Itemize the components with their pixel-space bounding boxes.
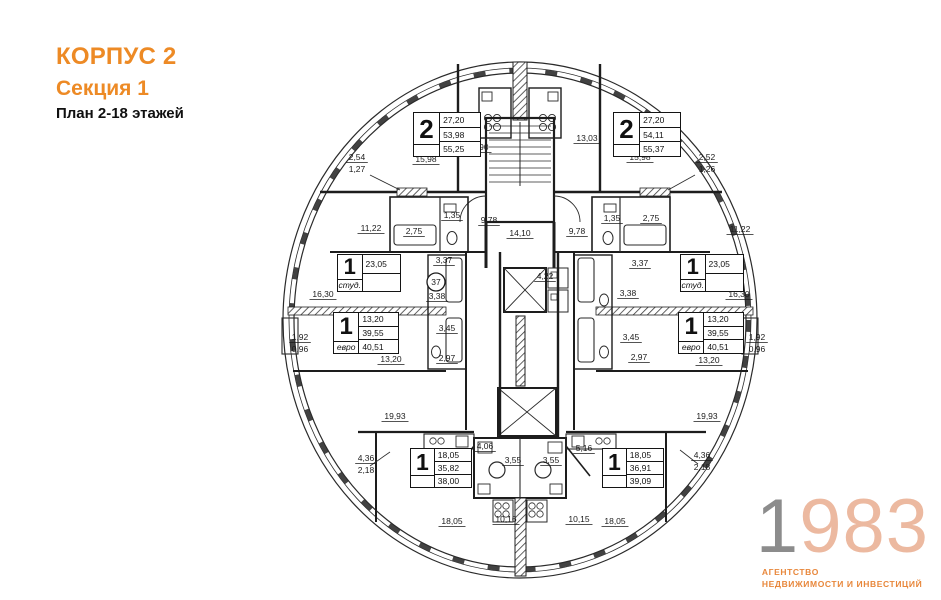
dimension-value: 3,55 <box>543 455 560 465</box>
dimension-label: 4,22 <box>534 271 556 282</box>
dimension-label: 3,37 <box>433 255 455 266</box>
bathroom-zone-right <box>592 197 670 252</box>
apartment-areas: 27,2053,9855,25 <box>440 113 480 156</box>
apartment-type-tag <box>411 475 434 487</box>
dimension-value: 3,38 <box>620 288 637 298</box>
apartment-rooms-cell: 1студ. <box>338 255 363 291</box>
apartment-area-value: 18,05 <box>435 449 471 462</box>
dimension-label: 4,06 <box>474 441 496 452</box>
dimension-value: 18,05 <box>604 516 626 526</box>
dimension-value: 3,38 <box>429 291 446 301</box>
apt-1-bottom-left: 118,0535,8238,00 <box>410 448 472 488</box>
apt-1-bottom-right: 118,0536,9139,09 <box>602 448 664 488</box>
stairwell <box>486 118 554 222</box>
dimension-value: 3,45 <box>623 332 640 342</box>
apartment-type-tag <box>603 475 626 487</box>
toilet <box>600 294 609 306</box>
apt-1-euro-left: 1евро13,2039,5540,51 <box>333 312 399 354</box>
vent-shaft-mid <box>516 316 525 386</box>
dimension-label: 18,05 <box>439 516 466 527</box>
dimension-value: 3,37 <box>632 258 649 268</box>
dimension-label: 2,75 <box>640 213 662 224</box>
sink <box>604 204 616 212</box>
apartment-rooms-cell: 1 <box>603 449 627 487</box>
elevator-shaft-lower <box>498 388 556 436</box>
dimension-label: 3,38 <box>426 291 448 302</box>
vent-shaft-bottom <box>515 498 526 576</box>
apartment-room-count: 2 <box>414 113 439 144</box>
dimension-value: 1,35 <box>444 210 461 220</box>
dimension-label: 1,35 <box>601 213 623 224</box>
apartment-area-value: 40,51 <box>704 340 743 353</box>
apartment-rooms-cell: 1евро <box>679 313 704 353</box>
dimension-label: 10,15 <box>566 514 593 525</box>
toilet <box>603 232 613 245</box>
kitchen-block-top-right <box>529 88 561 138</box>
apt-1-studio-left: 1студ.23,05 <box>337 254 401 292</box>
apartment-area-value: 23,05 <box>363 255 400 274</box>
dimension-label: 18,05 <box>602 516 629 527</box>
dimension-value: 4,36 <box>358 453 375 463</box>
apartment-type-tag <box>414 144 439 156</box>
dimension-value: 1,92 <box>749 332 766 342</box>
apartment-area-value: 36,91 <box>627 462 663 475</box>
logo-year-1983: 1983 <box>756 491 929 563</box>
dimension-value: 19,93 <box>384 411 406 421</box>
apartment-area-value: 40,51 <box>359 340 398 353</box>
dimension-value: 1,92 <box>292 332 309 342</box>
dimension-value: 1,35 <box>604 213 621 223</box>
apartment-area-value: 27,20 <box>440 113 480 128</box>
vent-shaft-top <box>513 62 527 120</box>
apartment-room-count: 1 <box>334 313 358 341</box>
dimension-label: 13,20 <box>378 354 405 365</box>
dimension-value: 2,52 <box>699 152 716 162</box>
apartment-areas: 18,0536,9139,09 <box>627 449 663 487</box>
apartment-areas: 13,2039,5540,51 <box>359 313 398 353</box>
dimension-label: 19,93 <box>694 411 721 422</box>
dimension-label: 19,93 <box>382 411 409 422</box>
dimension-label: 13,20 <box>696 355 723 366</box>
apartment-room-count: 2 <box>614 113 639 144</box>
dimension-value: 13,03 <box>576 133 598 143</box>
door-swing-right <box>554 196 580 222</box>
apartment-area-value: 38,00 <box>435 475 471 487</box>
dimension-value-secondary: 1,27 <box>349 164 366 174</box>
dimension-label: 9,78 <box>566 226 588 237</box>
dimension-value-secondary: 0,96 <box>292 344 309 354</box>
dimension-value: 11,22 <box>361 223 382 233</box>
apartment-area-value: 54,11 <box>640 128 680 143</box>
dimension-label: 13,03 <box>574 133 601 144</box>
dimension-label: 3,45 <box>436 323 458 334</box>
dimension-label: 3,45 <box>620 332 642 343</box>
agency-name-line2: НЕДВИЖИМОСТИ И ИНВЕСТИЦИЙ <box>762 579 929 590</box>
callout-37: 37 <box>427 273 445 291</box>
dimension-value-secondary: 0,96 <box>749 344 766 354</box>
callout-value: 37 <box>431 277 441 287</box>
apartment-rooms-cell: 1 <box>411 449 435 487</box>
bathtub <box>578 258 594 302</box>
agency-name: АГЕНТСТВО НЕДВИЖИМОСТИ И ИНВЕСТИЦИЙ <box>762 567 929 590</box>
dimension-value: 9,78 <box>481 215 498 225</box>
dimension-value: 14,10 <box>509 228 531 238</box>
dimension-label: 3,37 <box>629 258 651 269</box>
toilet <box>447 232 457 245</box>
kitchen-counter-bottom-left <box>424 434 474 449</box>
apartment-area-value: 13,20 <box>704 313 743 327</box>
apartment-area-value: 18,05 <box>627 449 663 462</box>
dimension-value: 13,20 <box>380 354 402 364</box>
apt-1-studio-right: 1студ.23,05 <box>680 254 744 292</box>
dimension-value: 16,30 <box>312 289 334 299</box>
apartment-type-tag: евро <box>679 341 703 353</box>
bathtub <box>578 318 594 362</box>
apartment-area-value: 39,55 <box>359 327 398 341</box>
dimension-value-secondary: 2,18 <box>694 462 711 472</box>
dimension-label: 9,78 <box>478 215 500 226</box>
logo-digits-salmon: 983 <box>799 484 929 569</box>
dimension-label: 3,55 <box>540 455 562 466</box>
dimension-value: 5,16 <box>576 443 593 453</box>
apartment-areas: 23,05 <box>363 255 400 291</box>
dimension-label: 1,35 <box>441 210 463 221</box>
kitchen-block-top-left <box>479 88 511 138</box>
apt-2-top-right: 227,2054,1155,37 <box>613 112 681 157</box>
dimension-label: 4,362,18 <box>355 453 377 475</box>
dimension-label: 2,541,27 <box>346 152 368 174</box>
dimension-label: 3,55 <box>502 455 524 466</box>
apartment-room-count: 1 <box>603 449 626 475</box>
apartment-area-value: 55,25 <box>440 142 480 156</box>
bathroom-zone-left <box>390 197 468 252</box>
dimension-label: 3,38 <box>617 288 639 299</box>
dimension-label: 11,22 <box>727 224 754 235</box>
apartment-type-tag: студ. <box>681 279 705 291</box>
apartment-area-value: 35,82 <box>435 462 471 475</box>
dimension-label: 16,30 <box>310 289 337 300</box>
apartment-area-spacer <box>706 274 743 292</box>
apartment-room-count: 1 <box>679 313 703 341</box>
dimension-value: 9,78 <box>569 226 586 236</box>
apartment-rooms-cell: 1евро <box>334 313 359 353</box>
dimension-value: 3,37 <box>436 255 453 265</box>
dimension-label: 2,97 <box>628 352 650 363</box>
apartment-room-count: 1 <box>681 255 705 279</box>
apartment-type-tag: студ. <box>338 279 362 291</box>
dimension-value: 3,45 <box>439 323 456 333</box>
apartment-areas: 27,2054,1155,37 <box>640 113 680 156</box>
apartment-areas: 18,0535,8238,00 <box>435 449 471 487</box>
apartment-areas: 13,2039,5540,51 <box>704 313 743 353</box>
apartment-area-value: 55,37 <box>640 142 680 156</box>
dimension-value-secondary: 1,26 <box>699 164 716 174</box>
apartment-area-value: 39,09 <box>627 475 663 487</box>
dimension-value: 18,05 <box>441 516 463 526</box>
apartment-areas: 23,05 <box>706 255 743 291</box>
dimension-value: 3,55 <box>505 455 522 465</box>
dimension-value: 2,75 <box>643 213 660 223</box>
apartment-area-value: 27,20 <box>640 113 680 128</box>
dimension-value: 4,06 <box>477 441 494 451</box>
dimension-label: 5,16 <box>573 443 595 454</box>
toilet <box>600 346 609 358</box>
dimension-value: 2,97 <box>631 352 648 362</box>
bathtub <box>624 225 666 245</box>
dimension-value: 19,93 <box>696 411 718 421</box>
dimension-label: 14,10 <box>507 228 534 239</box>
apartment-area-value: 13,20 <box>359 313 398 327</box>
apt-1-euro-right: 1евро13,2039,5540,51 <box>678 312 744 354</box>
dimension-label: 2,97 <box>436 353 458 364</box>
dimension-value: 4,36 <box>694 450 711 460</box>
apartment-area-value: 53,98 <box>440 128 480 143</box>
dimension-value: 2,97 <box>439 353 456 363</box>
apartment-room-count: 1 <box>411 449 434 475</box>
apartment-type-tag: евро <box>334 341 358 353</box>
dimension-label: 2,75 <box>403 226 425 237</box>
dimension-label: 10,16 <box>493 514 520 525</box>
dimension-value-secondary: 2,18 <box>358 465 375 475</box>
apartment-area-spacer <box>363 274 400 292</box>
dimension-label: 11,22 <box>358 223 385 234</box>
dimension-value: 11,22 <box>730 224 751 234</box>
dimension-value: 2,75 <box>406 226 423 236</box>
dimension-value: 4,22 <box>537 271 554 281</box>
apartment-room-count: 1 <box>338 255 362 279</box>
agency-logo: 1983 АГЕНТСТВО НЕДВИЖИМОСТИ И ИНВЕСТИЦИЙ <box>756 491 929 596</box>
apt-2-top-left: 227,2053,9855,25 <box>413 112 481 157</box>
apartment-rooms-cell: 2 <box>614 113 640 156</box>
apartment-area-value: 23,05 <box>706 255 743 274</box>
dimension-value: 10,15 <box>568 514 590 524</box>
dimension-value: 13,20 <box>698 355 720 365</box>
dimension-value: 2,54 <box>349 152 366 162</box>
logo-digit-gray: 1 <box>756 484 799 569</box>
dimension-label: 1,920,96 <box>746 332 768 354</box>
apartment-area-value: 39,55 <box>704 327 743 341</box>
apartment-type-tag <box>614 144 639 156</box>
dimension-value: 10,16 <box>495 514 517 524</box>
apartment-rooms-cell: 1студ. <box>681 255 706 291</box>
apartment-rooms-cell: 2 <box>414 113 440 156</box>
